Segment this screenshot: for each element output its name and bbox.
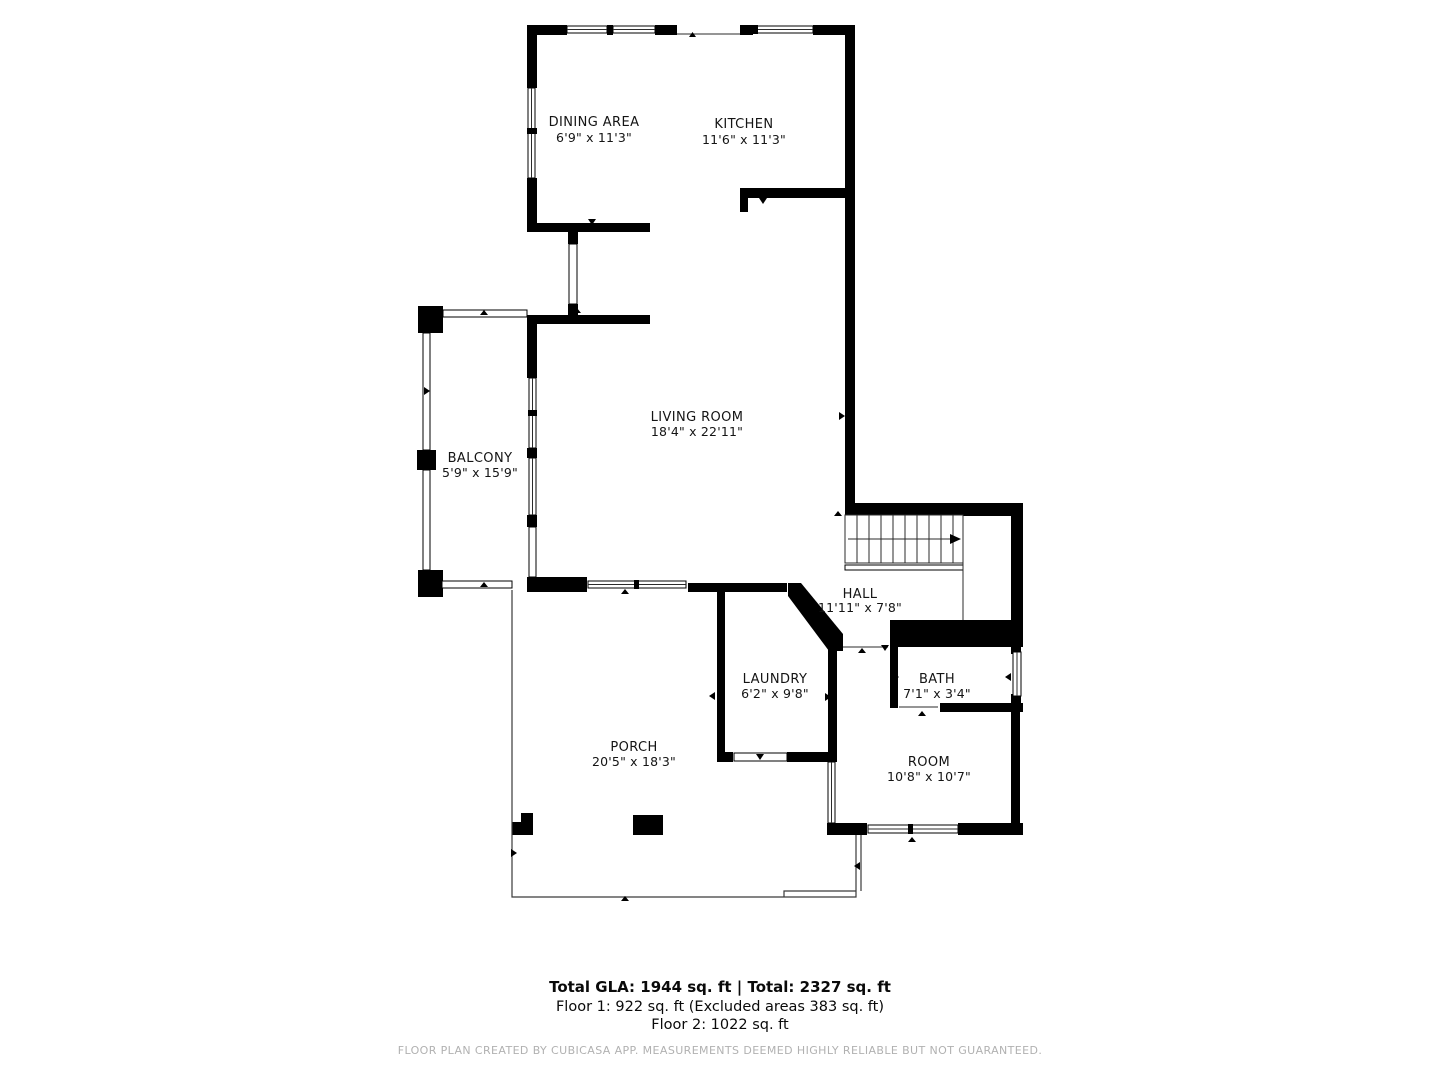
svg-text:PORCH: PORCH <box>610 740 657 755</box>
svg-text:BALCONY: BALCONY <box>448 451 513 466</box>
room-label-bath: BATH 7'1" x 3'4" <box>903 672 971 701</box>
svg-text:7'1" x 3'4": 7'1" x 3'4" <box>903 686 971 701</box>
balcony-railings <box>423 310 527 588</box>
svg-text:11'11" x 7'8": 11'11" x 7'8" <box>818 600 902 615</box>
room-label-kitchen: KITCHEN 11'6" x 11'3" <box>702 117 786 147</box>
area-summary: Total GLA: 1944 sq. ft | Total: 2327 sq.… <box>0 978 1440 1035</box>
svg-text:6'2" x 9'8": 6'2" x 9'8" <box>741 686 809 701</box>
summary-floor1: Floor 1: 922 sq. ft (Excluded areas 383 … <box>0 999 1440 1015</box>
porch-pillar-center <box>633 815 663 835</box>
balcony-pillar-top <box>418 306 443 333</box>
svg-text:11'6" x 11'3": 11'6" x 11'3" <box>702 132 786 147</box>
svg-text:18'4" x 22'11": 18'4" x 22'11" <box>651 424 743 439</box>
footer-disclaimer: FLOOR PLAN CREATED BY CUBICASA APP. MEAS… <box>0 1044 1440 1057</box>
svg-text:10'8" x 10'7": 10'8" x 10'7" <box>887 769 971 784</box>
svg-text:BATH: BATH <box>919 672 955 687</box>
porch-outline <box>512 590 861 897</box>
floor-plan-canvas: DINING AREA 6'9" x 11'3" KITCHEN 11'6" x… <box>0 0 1440 1080</box>
svg-text:LAUNDRY: LAUNDRY <box>743 672 808 687</box>
floor-plan-drawing: DINING AREA 6'9" x 11'3" KITCHEN 11'6" x… <box>0 0 1440 1080</box>
svg-text:KITCHEN: KITCHEN <box>714 117 773 132</box>
room-label-hall: HALL 11'11" x 7'8" <box>818 587 902 615</box>
svg-text:LIVING ROOM: LIVING ROOM <box>651 410 744 425</box>
room-label-dining: DINING AREA 6'9" x 11'3" <box>549 115 640 145</box>
svg-text:20'5" x 18'3": 20'5" x 18'3" <box>592 754 676 769</box>
room-label-balcony: BALCONY 5'9" x 15'9" <box>442 451 518 480</box>
room-label-living: LIVING ROOM 18'4" x 22'11" <box>651 410 744 439</box>
svg-text:DINING AREA: DINING AREA <box>549 115 640 130</box>
svg-text:6'9" x 11'3": 6'9" x 11'3" <box>556 130 632 145</box>
room-label-laundry: LAUNDRY 6'2" x 9'8" <box>741 672 809 701</box>
svg-text:5'9" x 15'9": 5'9" x 15'9" <box>442 465 518 480</box>
summary-total: Total GLA: 1944 sq. ft | Total: 2327 sq.… <box>0 978 1440 996</box>
room-label-porch: PORCH 20'5" x 18'3" <box>592 740 676 769</box>
balcony-pillar-mid <box>417 450 436 470</box>
summary-floor2: Floor 2: 1022 sq. ft <box>0 1017 1440 1033</box>
porch-pillar-left <box>512 813 533 835</box>
balcony-pillar-bottom <box>418 570 443 597</box>
room-label-room: ROOM 10'8" x 10'7" <box>887 755 971 784</box>
svg-text:ROOM: ROOM <box>908 755 950 770</box>
